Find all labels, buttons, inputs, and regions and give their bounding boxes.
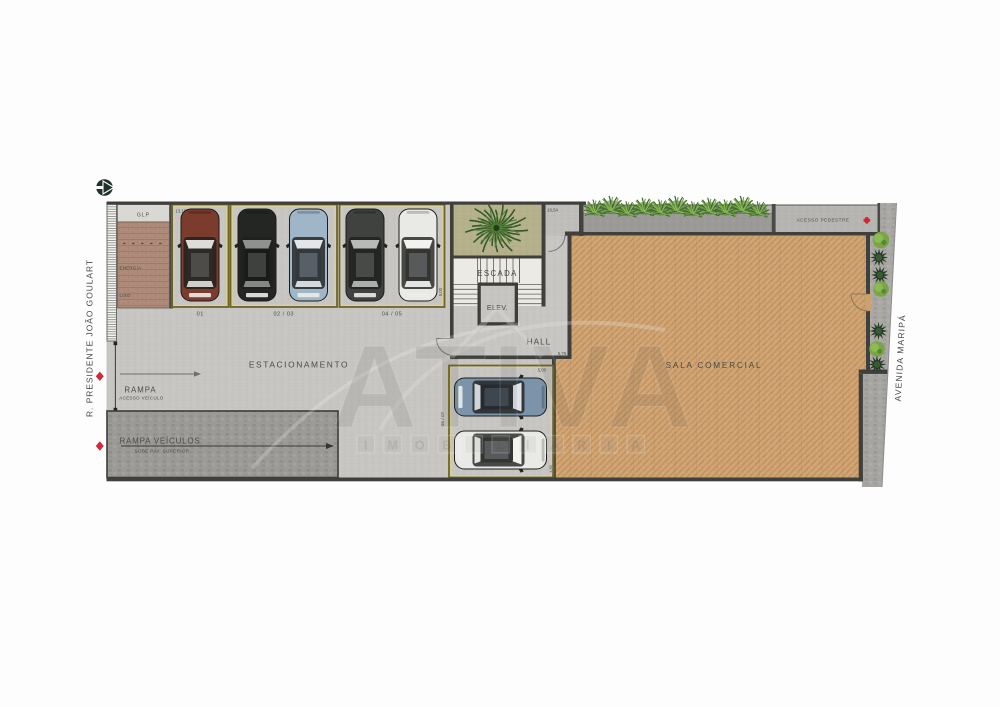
- svg-text:5,00: 5,00: [438, 287, 443, 296]
- svg-text:L: L: [497, 439, 505, 453]
- svg-text:R. PRESIDENTE JOÃO GOULART: R. PRESIDENTE JOÃO GOULART: [85, 259, 95, 417]
- svg-text:SOBE PAV. SUPERIOR: SOBE PAV. SUPERIOR: [135, 449, 190, 454]
- svg-text:I: I: [526, 439, 529, 453]
- svg-text:ENERGIA: ENERGIA: [120, 266, 142, 271]
- svg-text:RAMPA VEÍCULOS: RAMPA VEÍCULOS: [120, 437, 201, 446]
- svg-text:16,54: 16,54: [547, 208, 559, 213]
- svg-text:01: 01: [197, 312, 204, 318]
- svg-text:RAMPA: RAMPA: [124, 386, 156, 395]
- svg-text:B: B: [442, 439, 451, 453]
- svg-text:02 / 03: 02 / 03: [273, 312, 294, 318]
- svg-text:LIXO: LIXO: [120, 293, 131, 298]
- svg-text:Á: Á: [550, 438, 559, 453]
- svg-text:ATIVA: ATIVA: [332, 321, 698, 453]
- svg-text:ACESSO PEDESTRE: ACESSO PEDESTRE: [797, 218, 850, 223]
- svg-text:M: M: [388, 439, 398, 453]
- svg-text:I: I: [364, 439, 367, 453]
- svg-text:R: R: [577, 439, 586, 453]
- svg-text:I: I: [472, 439, 475, 453]
- svg-text:4,50: 4,50: [548, 464, 553, 472]
- svg-text:GLP: GLP: [137, 213, 150, 219]
- svg-text:ESCADA: ESCADA: [477, 269, 517, 278]
- svg-text:O: O: [415, 439, 425, 453]
- svg-text:I: I: [607, 439, 610, 453]
- svg-text:A: A: [631, 439, 640, 453]
- svg-text:ACESSO VEÍCULO: ACESSO VEÍCULO: [119, 396, 164, 401]
- svg-text:04 / 05: 04 / 05: [382, 312, 403, 318]
